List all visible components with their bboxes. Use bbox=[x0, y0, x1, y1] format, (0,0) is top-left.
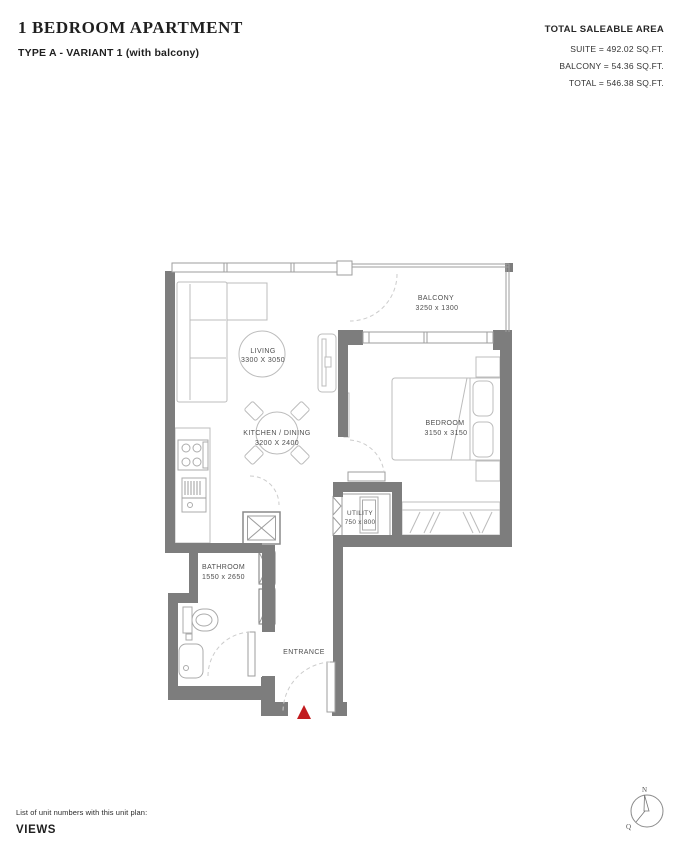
bathroom-door bbox=[208, 632, 255, 676]
bedroom-label: BEDROOM bbox=[426, 420, 465, 427]
entrance-label: ENTRANCE bbox=[283, 649, 325, 656]
floor-plan-drawing: LIVING 3300 X 3050 KITCHEN / DINING 3200… bbox=[0, 0, 691, 852]
kitchen-dining-label: KITCHEN / DINING bbox=[243, 430, 310, 437]
wardrobe bbox=[402, 502, 500, 535]
sofa bbox=[177, 282, 267, 402]
hall-door-swing bbox=[250, 476, 279, 505]
bathroom-dims: 1550 x 2650 bbox=[202, 574, 245, 581]
living-window-band bbox=[172, 263, 352, 272]
living-room bbox=[177, 282, 336, 402]
service-shaft bbox=[243, 512, 280, 544]
entrance-marker bbox=[297, 705, 311, 719]
bedroom-dims: 3150 x 3150 bbox=[425, 430, 468, 437]
living-label: LIVING bbox=[250, 348, 275, 355]
stove bbox=[178, 440, 208, 470]
utility-dims: 750 x 800 bbox=[345, 519, 376, 526]
kitchen-sink bbox=[182, 478, 206, 512]
nightstand-bottom bbox=[476, 461, 500, 481]
compass-icon: N Q bbox=[626, 786, 663, 831]
bathroom bbox=[179, 595, 218, 678]
bedroom-door bbox=[348, 440, 385, 481]
toilet bbox=[183, 607, 218, 633]
compass-q-label: Q bbox=[626, 823, 631, 831]
kitchen-dining-dims: 3200 X 2400 bbox=[255, 440, 299, 447]
balcony-door bbox=[337, 261, 397, 321]
bed bbox=[392, 378, 504, 460]
paper-holder bbox=[186, 634, 192, 640]
living-dims: 3300 X 3050 bbox=[241, 357, 285, 364]
nightstand-top bbox=[476, 357, 500, 377]
bedroom-window-band bbox=[363, 332, 493, 343]
balcony-dims: 3250 x 1300 bbox=[416, 305, 459, 312]
floor-plan-page: { "header": { "title": "1 BEDROOM APARTM… bbox=[0, 0, 691, 852]
unit-list-note: List of unit numbers with this unit plan… bbox=[16, 808, 147, 817]
utility-label: UTILITY bbox=[347, 510, 373, 517]
shower-tray bbox=[179, 644, 203, 678]
balcony-label: BALCONY bbox=[418, 295, 454, 302]
bathroom-label: BATHROOM bbox=[202, 564, 245, 571]
utility-bifold-door bbox=[333, 497, 341, 535]
entrance-door bbox=[283, 662, 335, 712]
compass-north-label: N bbox=[642, 786, 647, 794]
views-heading: VIEWS bbox=[16, 824, 56, 836]
tv-unit bbox=[318, 334, 336, 392]
